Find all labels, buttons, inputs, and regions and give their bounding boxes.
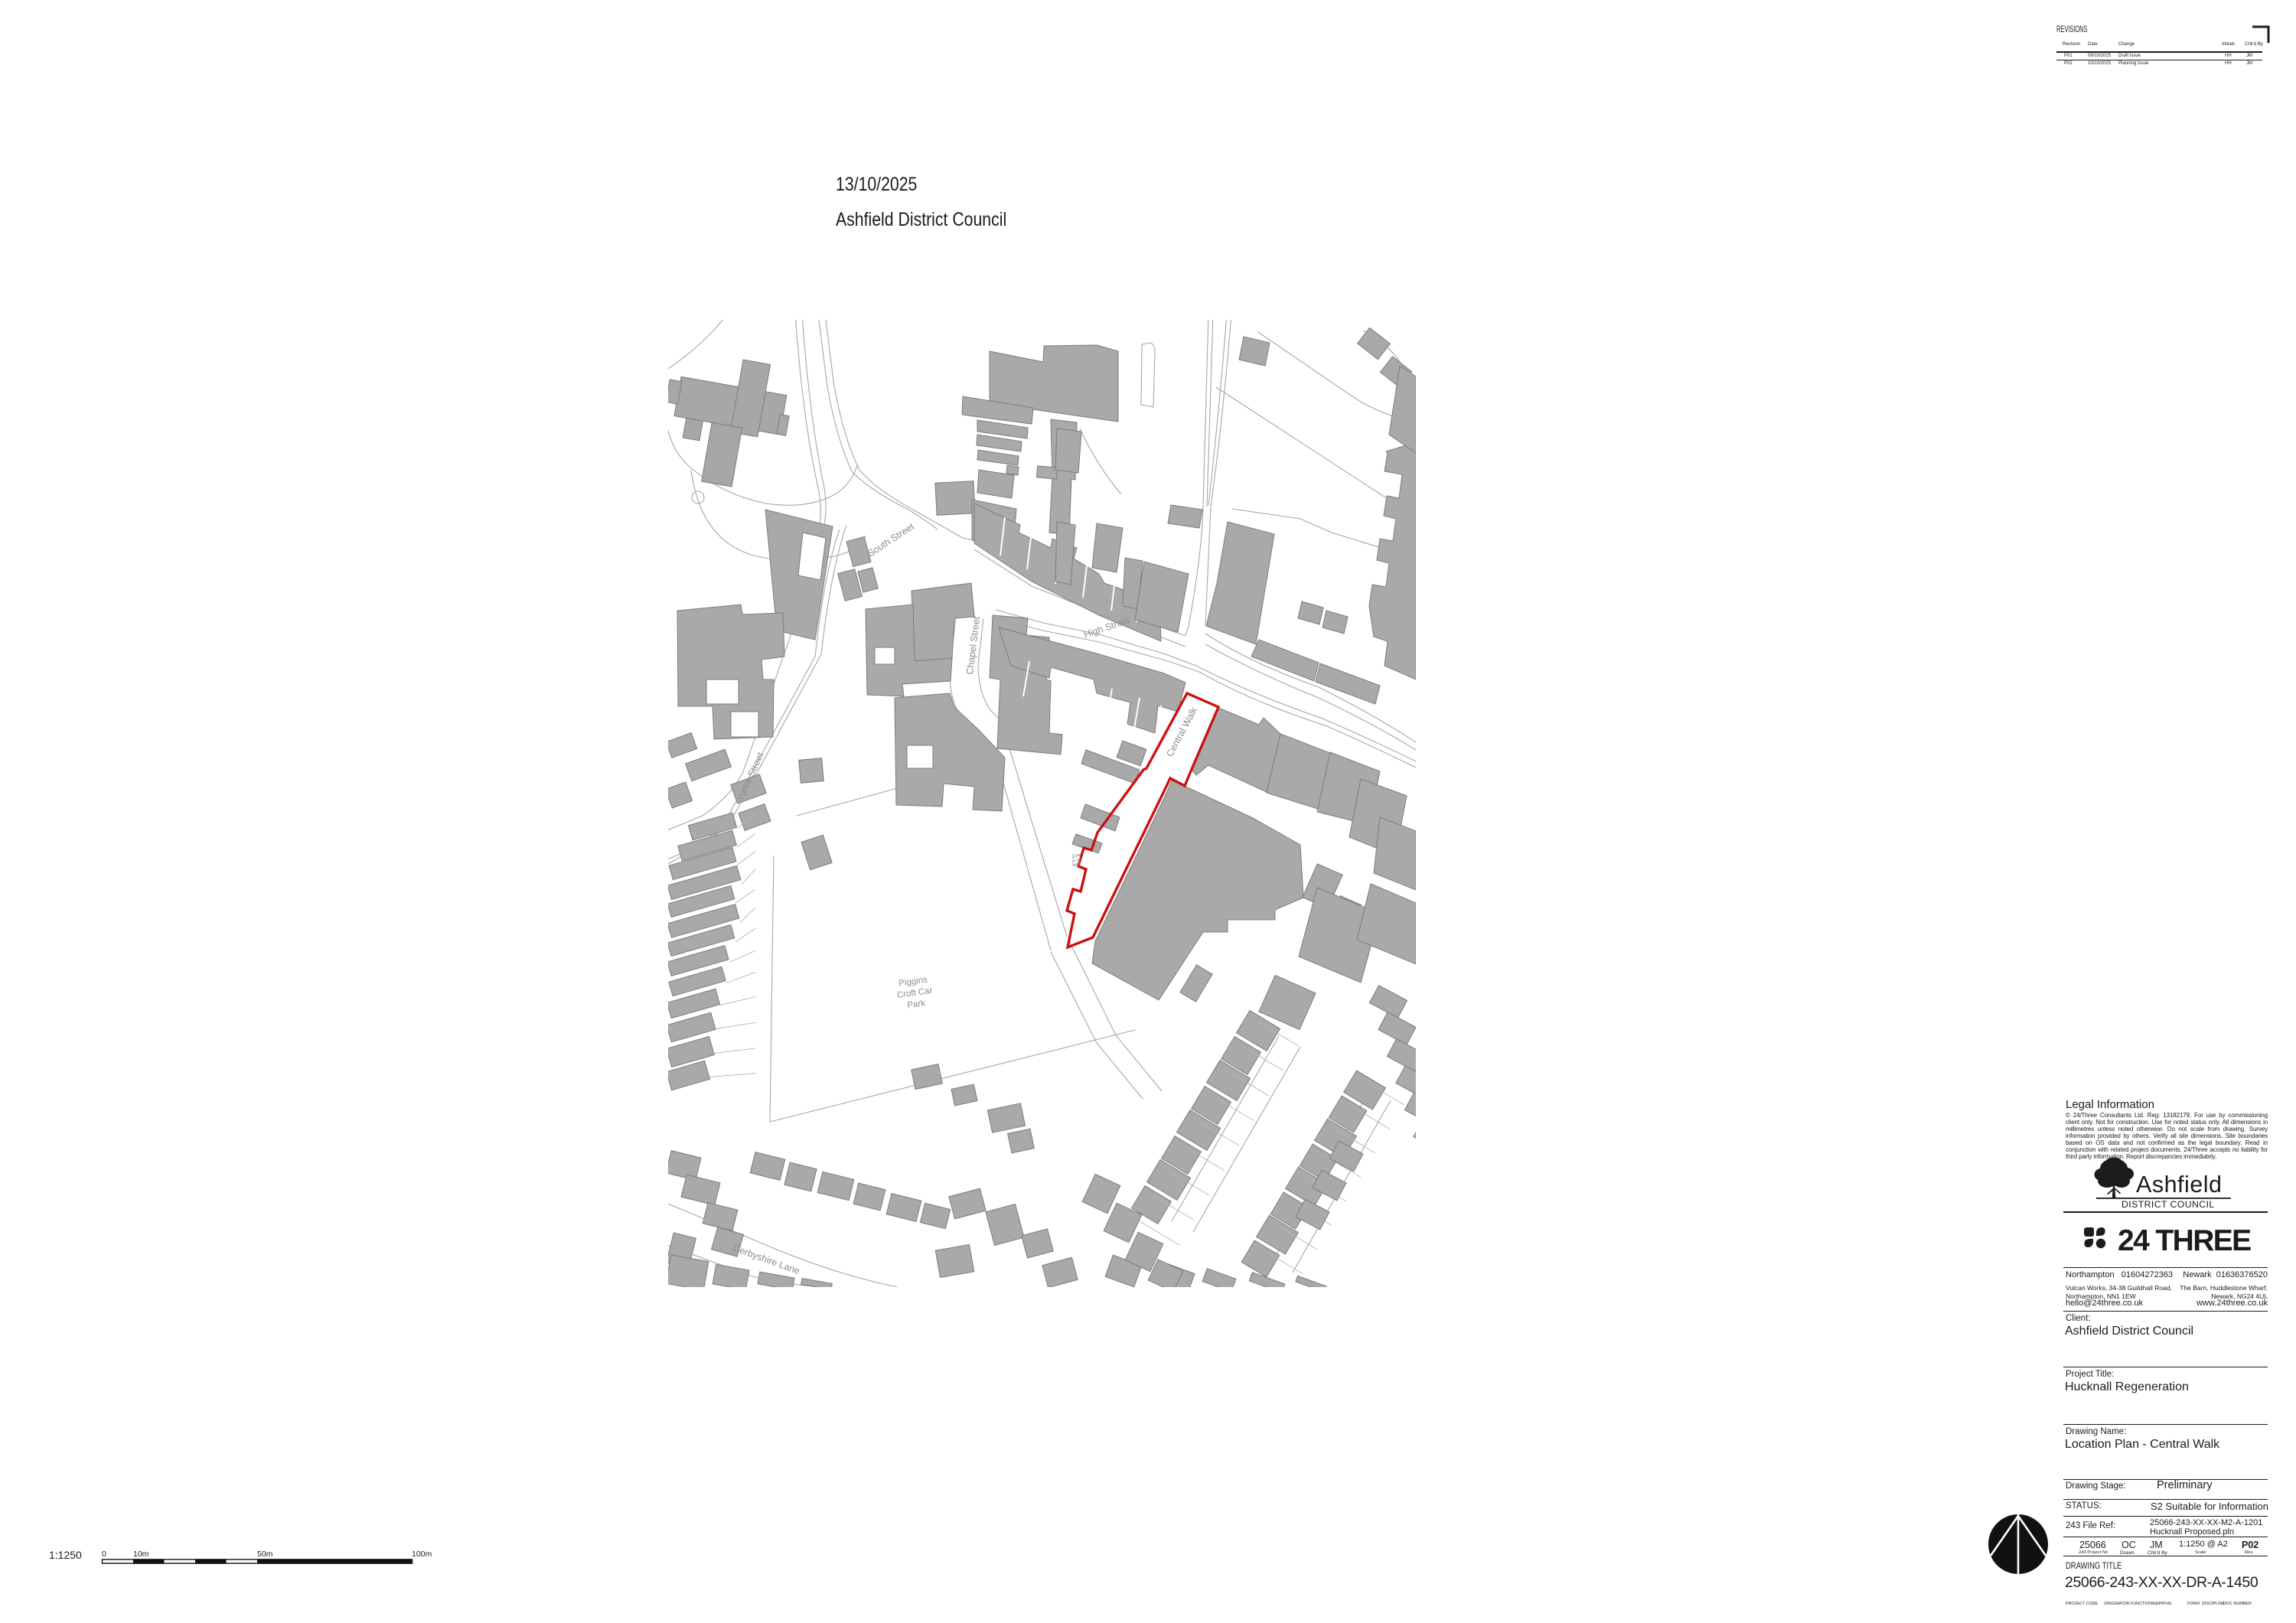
svg-text:Piggins: Piggins xyxy=(899,976,928,989)
svg-text:24 THREE: 24 THREE xyxy=(2118,1224,2251,1256)
svg-text:0: 0 xyxy=(102,1550,106,1559)
svg-text:South Street: South Street xyxy=(866,521,916,559)
svg-text:Chapel Street: Chapel Street xyxy=(964,615,982,675)
svg-text:50m: 50m xyxy=(257,1550,273,1559)
svg-text:Park: Park xyxy=(907,999,926,1010)
svg-text:Central Walk: Central Walk xyxy=(1164,705,1199,758)
svg-text:DISTRICT COUNCIL: DISTRICT COUNCIL xyxy=(2122,1199,2215,1210)
svg-text:Ashfield: Ashfield xyxy=(2136,1172,2223,1198)
svg-text:100m: 100m xyxy=(412,1550,432,1559)
svg-text:10m: 10m xyxy=(133,1550,149,1559)
svg-text:Croft Car: Croft Car xyxy=(896,986,933,1000)
